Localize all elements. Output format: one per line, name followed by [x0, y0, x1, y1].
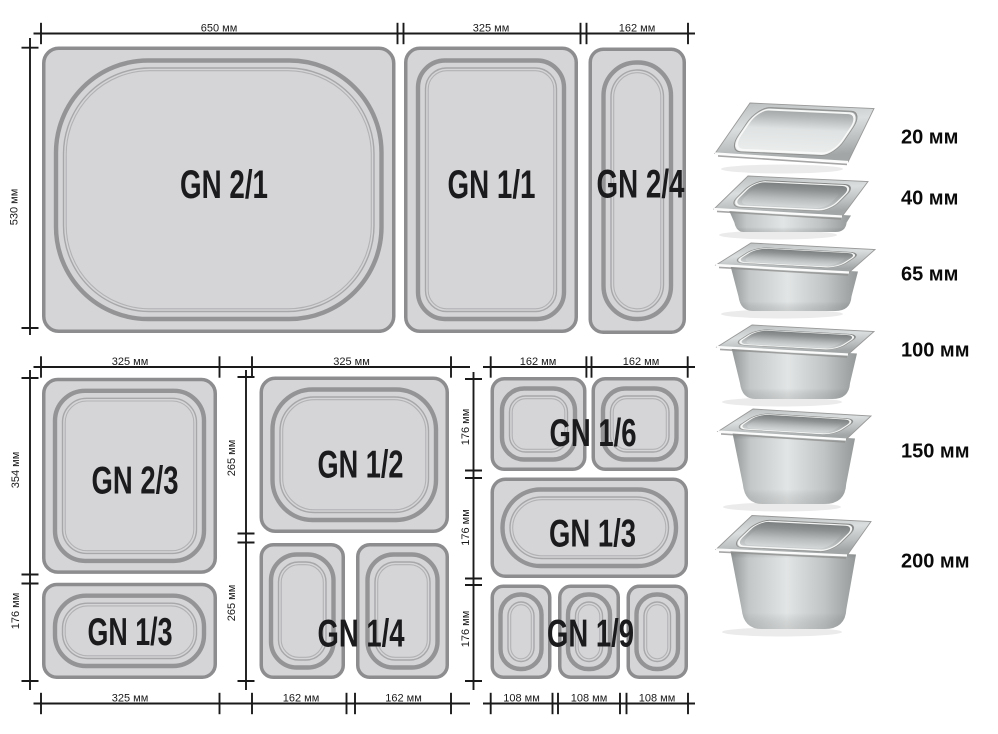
svg-text:325 мм: 325 мм — [333, 356, 370, 368]
svg-text:20 мм: 20 мм — [901, 127, 958, 149]
svg-text:GN 1/9: GN 1/9 — [547, 612, 634, 655]
svg-text:354 мм: 354 мм — [10, 452, 22, 489]
svg-text:200 мм: 200 мм — [901, 551, 970, 573]
svg-text:176 мм: 176 мм — [460, 409, 472, 446]
svg-text:325 мм: 325 мм — [112, 693, 149, 705]
svg-text:40 мм: 40 мм — [901, 188, 958, 210]
svg-text:100 мм: 100 мм — [901, 340, 970, 362]
svg-text:GN 1/6: GN 1/6 — [550, 412, 637, 455]
svg-text:162 мм: 162 мм — [385, 693, 422, 705]
svg-text:162 мм: 162 мм — [520, 356, 557, 368]
svg-text:162 мм: 162 мм — [623, 356, 660, 368]
svg-text:GN 2/4: GN 2/4 — [597, 162, 686, 206]
svg-text:108 мм: 108 мм — [639, 693, 676, 705]
svg-text:530 мм: 530 мм — [9, 189, 21, 226]
svg-text:GN 2/1: GN 2/1 — [180, 163, 268, 207]
svg-text:108 мм: 108 мм — [503, 693, 540, 705]
svg-text:650 мм: 650 мм — [201, 23, 238, 35]
svg-text:325 мм: 325 мм — [473, 23, 510, 35]
svg-text:65 мм: 65 мм — [901, 264, 958, 286]
svg-text:162 мм: 162 мм — [619, 23, 656, 35]
svg-text:GN 2/3: GN 2/3 — [92, 459, 179, 502]
svg-text:162 мм: 162 мм — [283, 693, 320, 705]
svg-text:150 мм: 150 мм — [901, 441, 970, 463]
svg-text:GN 1/3: GN 1/3 — [549, 512, 636, 555]
svg-text:265 мм: 265 мм — [226, 585, 238, 622]
svg-text:GN 1/4: GN 1/4 — [318, 612, 405, 655]
svg-text:325 мм: 325 мм — [112, 356, 149, 368]
svg-text:265 мм: 265 мм — [226, 440, 238, 477]
svg-text:108 мм: 108 мм — [571, 693, 608, 705]
svg-text:176 мм: 176 мм — [10, 593, 22, 630]
svg-text:GN 1/2: GN 1/2 — [318, 443, 404, 486]
svg-text:176 мм: 176 мм — [460, 509, 472, 546]
svg-text:176 мм: 176 мм — [460, 611, 472, 648]
svg-text:GN 1/3: GN 1/3 — [88, 611, 173, 654]
svg-text:GN 1/1: GN 1/1 — [448, 163, 536, 207]
